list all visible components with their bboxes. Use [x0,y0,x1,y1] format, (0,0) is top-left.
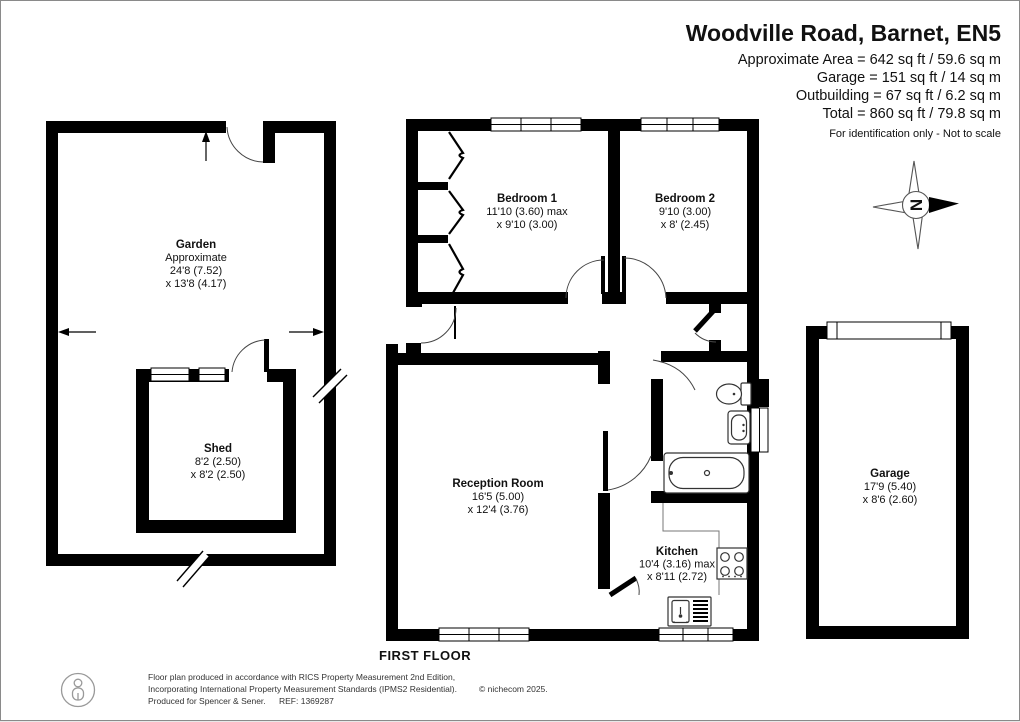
bedroom1-window [491,118,581,131]
garden-label: Garden Approximate 24'8 (7.52) x 13'8 (4… [165,239,227,290]
reception-dim1: 16'5 (5.00) [472,491,524,503]
footer-line3: Produced for Spencer & Sener. [148,696,266,706]
garage-label: Garage 17'9 (5.40) x 8'6 (2.60) [863,468,918,506]
garden-name: Garden [176,239,216,251]
shed-area: Shed 8'2 (2.50) x 8'2 (2.50) [136,339,296,533]
footer-ref: REF: 1369287 [279,696,334,706]
kitchen-dim1: 10'4 (3.16) max [639,559,716,571]
toilet-icon [717,383,752,405]
bedroom2-door-leaf [622,256,626,294]
footer-line2: Incorporating International Property Mea… [148,684,457,694]
bedroom2-window [641,118,719,131]
measure-arrow-left-icon [58,328,96,336]
shed-name: Shed [204,443,232,455]
footer-copyright: © nichecom 2025. [479,684,548,694]
bedroom2-dim1: 9'10 (3.00) [659,206,711,218]
page-title: Woodville Road, Barnet, EN5 [686,20,1001,46]
bedroom1-name: Bedroom 1 [497,193,558,205]
shed-window [199,368,225,381]
reception-dim2: x 12'4 (3.76) [468,504,529,516]
flat-area: Bedroom 1 11'10 (3.60) max x 9'10 (3.00)… [386,118,769,641]
sink-icon [728,411,750,444]
garage-dim1: 17'9 (5.40) [864,481,916,493]
bedroom2-name: Bedroom 2 [655,193,715,205]
kitchen-label: Kitchen 10'4 (3.16) max x 8'11 (2.72) [639,546,716,583]
measure-arrow-right-icon [289,328,324,336]
garage-door [827,322,951,339]
shed-label: Shed 8'2 (2.50) x 8'2 (2.50) [191,443,246,481]
footer-line1: Floor plan produced in accordance with R… [148,672,455,682]
bedroom2-label: Bedroom 2 9'10 (3.00) x 8' (2.45) [655,193,715,231]
wardrobe-doors [449,132,463,300]
north-arrow-icon [929,197,959,213]
floorplan-page: Garden Approximate 24'8 (7.52) x 13'8 (4… [0,0,1020,721]
area-line: Outbuilding = 67 sq ft / 6.2 sq m [796,88,1001,104]
hob-icon [717,548,747,579]
kitchen-sink-icon [668,597,711,626]
bedroom1-dim2: x 9'10 (3.00) [497,219,558,231]
hall-door-arc [608,456,651,490]
reception-name: Reception Room [452,478,543,490]
bedroom1-label: Bedroom 1 11'10 (3.60) max x 9'10 (3.00) [486,193,568,231]
garage-name: Garage [870,468,910,480]
garden-dim1: 24'8 (7.52) [170,265,222,277]
compass-letter: N [907,199,926,211]
kitchen-dim2: x 8'11 (2.72) [647,571,707,583]
shed-dim1: 8'2 (2.50) [195,456,241,468]
garage-area: Garage 17'9 (5.40) x 8'6 (2.60) [806,322,969,639]
bedroom2-dim2: x 8' (2.45) [661,219,710,231]
shed-door-leaf [264,339,269,372]
floorplan-canvas: Garden Approximate 24'8 (7.52) x 13'8 (4… [1,1,1020,722]
garage-dim2: x 8'6 (2.60) [863,494,918,506]
area-line: Garage = 151 sq ft / 14 sq m [817,70,1001,86]
floor-label: FIRST FLOOR [379,648,471,663]
bathtub-icon [664,453,749,493]
nichecom-logo-icon [62,674,95,707]
footer: Floor plan produced in accordance with R… [62,672,548,707]
area-line: Approximate Area = 642 sq ft / 59.6 sq m [738,52,1001,68]
shed-dim2: x 8'2 (2.50) [191,469,246,481]
garden-gate-arc [227,127,263,162]
front-door-leaf [695,307,717,331]
garden-note: Approximate [165,252,227,264]
shed-window [151,368,189,381]
bathroom-window [751,408,768,452]
kitchen-door-arc [636,579,639,595]
reception-window [439,628,529,641]
area-line: Total = 860 sq ft / 79.8 sq m [822,106,1001,122]
bedroom1-dim1: 11'10 (3.60) max [486,206,568,218]
compass-icon: N [873,161,959,249]
bedroom1-door-leaf [601,256,605,294]
shed-door-arc [232,340,265,372]
hall-door-leaf [603,431,608,491]
reception-label: Reception Room 16'5 (5.00) x 12'4 (3.76) [452,478,543,516]
garden-dim2: x 13'8 (4.17) [166,278,227,290]
kitchen-door-leaf [610,578,636,595]
reception-door-arc [421,308,456,343]
measure-arrow-up-icon [202,131,210,161]
disclaimer: For identification only - Not to scale [829,128,1001,140]
kitchen-window [659,628,733,641]
kitchen-name: Kitchen [656,546,698,558]
garden-area: Garden Approximate 24'8 (7.52) x 13'8 (4… [46,121,347,587]
